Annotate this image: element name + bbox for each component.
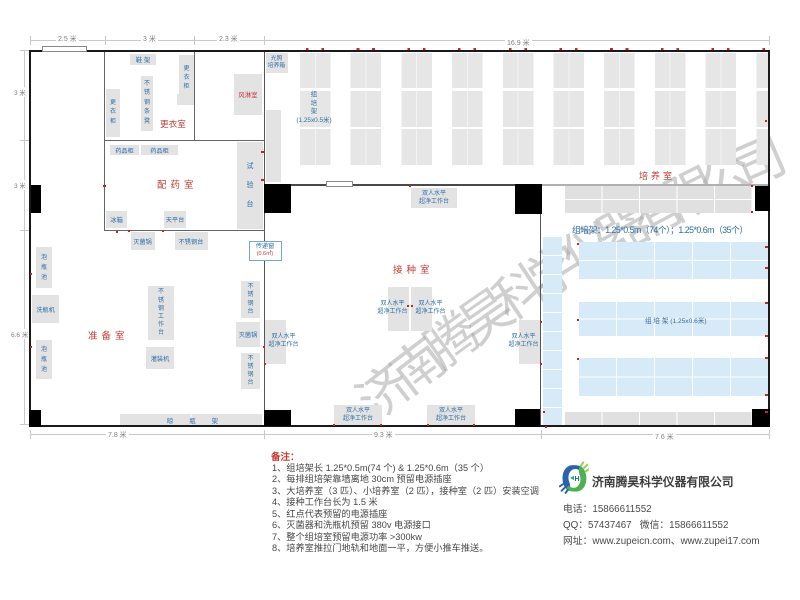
svg-text:H: H bbox=[574, 476, 579, 483]
